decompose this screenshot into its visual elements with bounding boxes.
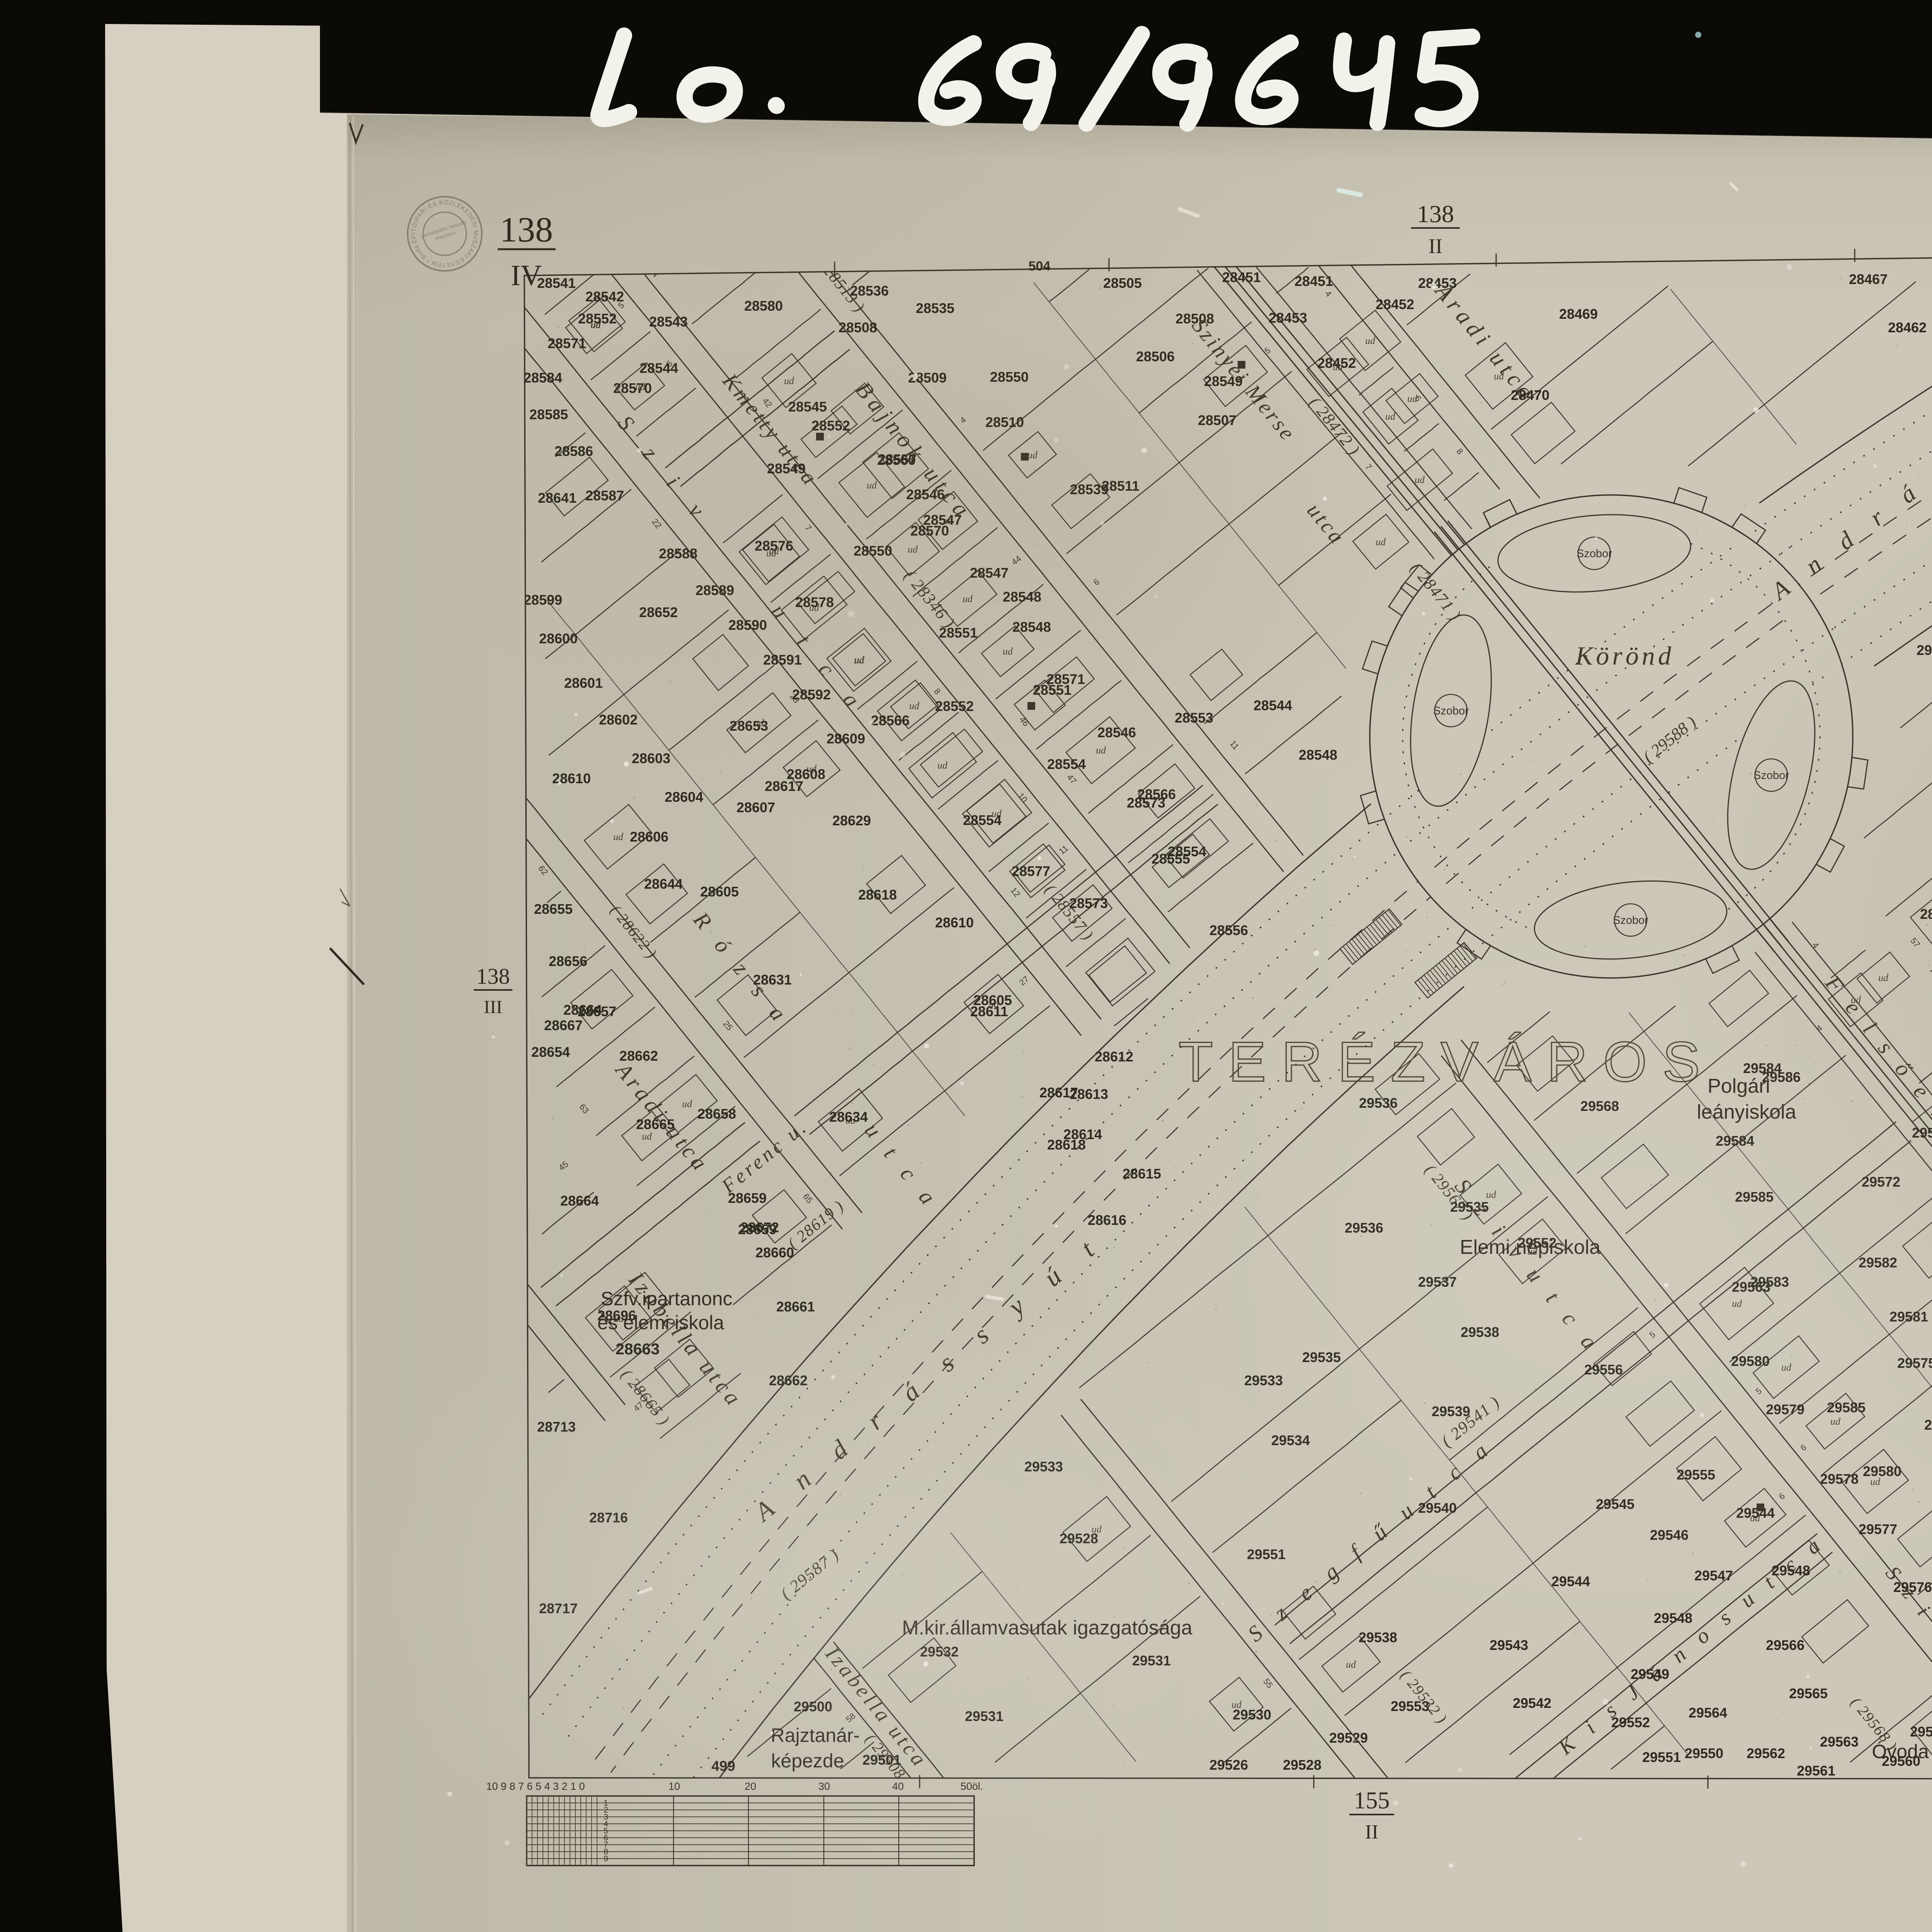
svg-text:28467: 28467 [1849, 271, 1888, 287]
svg-text:29543: 29543 [1910, 1724, 1932, 1740]
svg-text:Körönd: Körönd [1575, 641, 1674, 670]
svg-text:28606: 28606 [630, 829, 668, 845]
svg-text:138: 138 [476, 964, 510, 989]
svg-text:28659: 28659 [738, 1221, 777, 1237]
svg-text:28644: 28644 [644, 876, 683, 892]
svg-text:IV: IV [511, 259, 542, 292]
svg-text:Szobor: Szobor [1577, 548, 1612, 560]
svg-text:28662: 28662 [619, 1048, 658, 1064]
svg-text:28667: 28667 [544, 1017, 583, 1033]
svg-text:28617: 28617 [1039, 1085, 1078, 1100]
svg-text:155: 155 [1354, 1787, 1390, 1814]
svg-text:28555: 28555 [1151, 851, 1190, 867]
svg-text:29549: 29549 [1631, 1666, 1669, 1682]
svg-text:29552: 29552 [1611, 1714, 1650, 1730]
svg-text:28664: 28664 [560, 1193, 599, 1209]
svg-text:29564: 29564 [1689, 1705, 1727, 1721]
svg-text:29563: 29563 [1820, 1734, 1859, 1750]
svg-text:28658: 28658 [697, 1106, 736, 1122]
svg-text:29542: 29542 [1513, 1695, 1551, 1711]
svg-text:28618: 28618 [858, 887, 897, 903]
svg-text:28611: 28611 [970, 1003, 1008, 1019]
svg-text:29529: 29529 [1329, 1730, 1368, 1746]
svg-text:ud: ud [613, 831, 624, 842]
svg-text:29560: 29560 [1882, 1753, 1920, 1769]
svg-text:28610: 28610 [935, 915, 974, 930]
svg-text:29562: 29562 [1747, 1745, 1785, 1761]
svg-text:ud: ud [682, 1098, 692, 1109]
svg-text:ud: ud [642, 1131, 652, 1142]
svg-text:28556: 28556 [1209, 922, 1248, 938]
svg-text:28659: 28659 [728, 1190, 767, 1206]
svg-text:28605: 28605 [700, 884, 739, 900]
svg-text:28655: 28655 [534, 901, 573, 917]
svg-text:II: II [1429, 235, 1442, 258]
svg-text:28654: 28654 [531, 1044, 570, 1060]
svg-text:29550: 29550 [1685, 1745, 1723, 1761]
svg-text:28469: 28469 [1559, 306, 1598, 322]
svg-text:28660: 28660 [755, 1245, 794, 1260]
svg-text:28610: 28610 [552, 770, 591, 786]
svg-text:III: III [484, 997, 502, 1017]
svg-text:29561: 29561 [1797, 1763, 1835, 1779]
svg-text:29565: 29565 [1789, 1685, 1828, 1701]
svg-text:II: II [1365, 1821, 1379, 1843]
svg-text:28634: 28634 [829, 1109, 868, 1125]
svg-text:29551: 29551 [1642, 1749, 1681, 1765]
svg-text:138: 138 [1417, 200, 1454, 228]
svg-text:28657: 28657 [578, 1003, 616, 1019]
svg-text:28462: 28462 [1888, 320, 1927, 335]
svg-text:138: 138 [500, 210, 553, 249]
svg-text:28656: 28656 [549, 953, 587, 969]
